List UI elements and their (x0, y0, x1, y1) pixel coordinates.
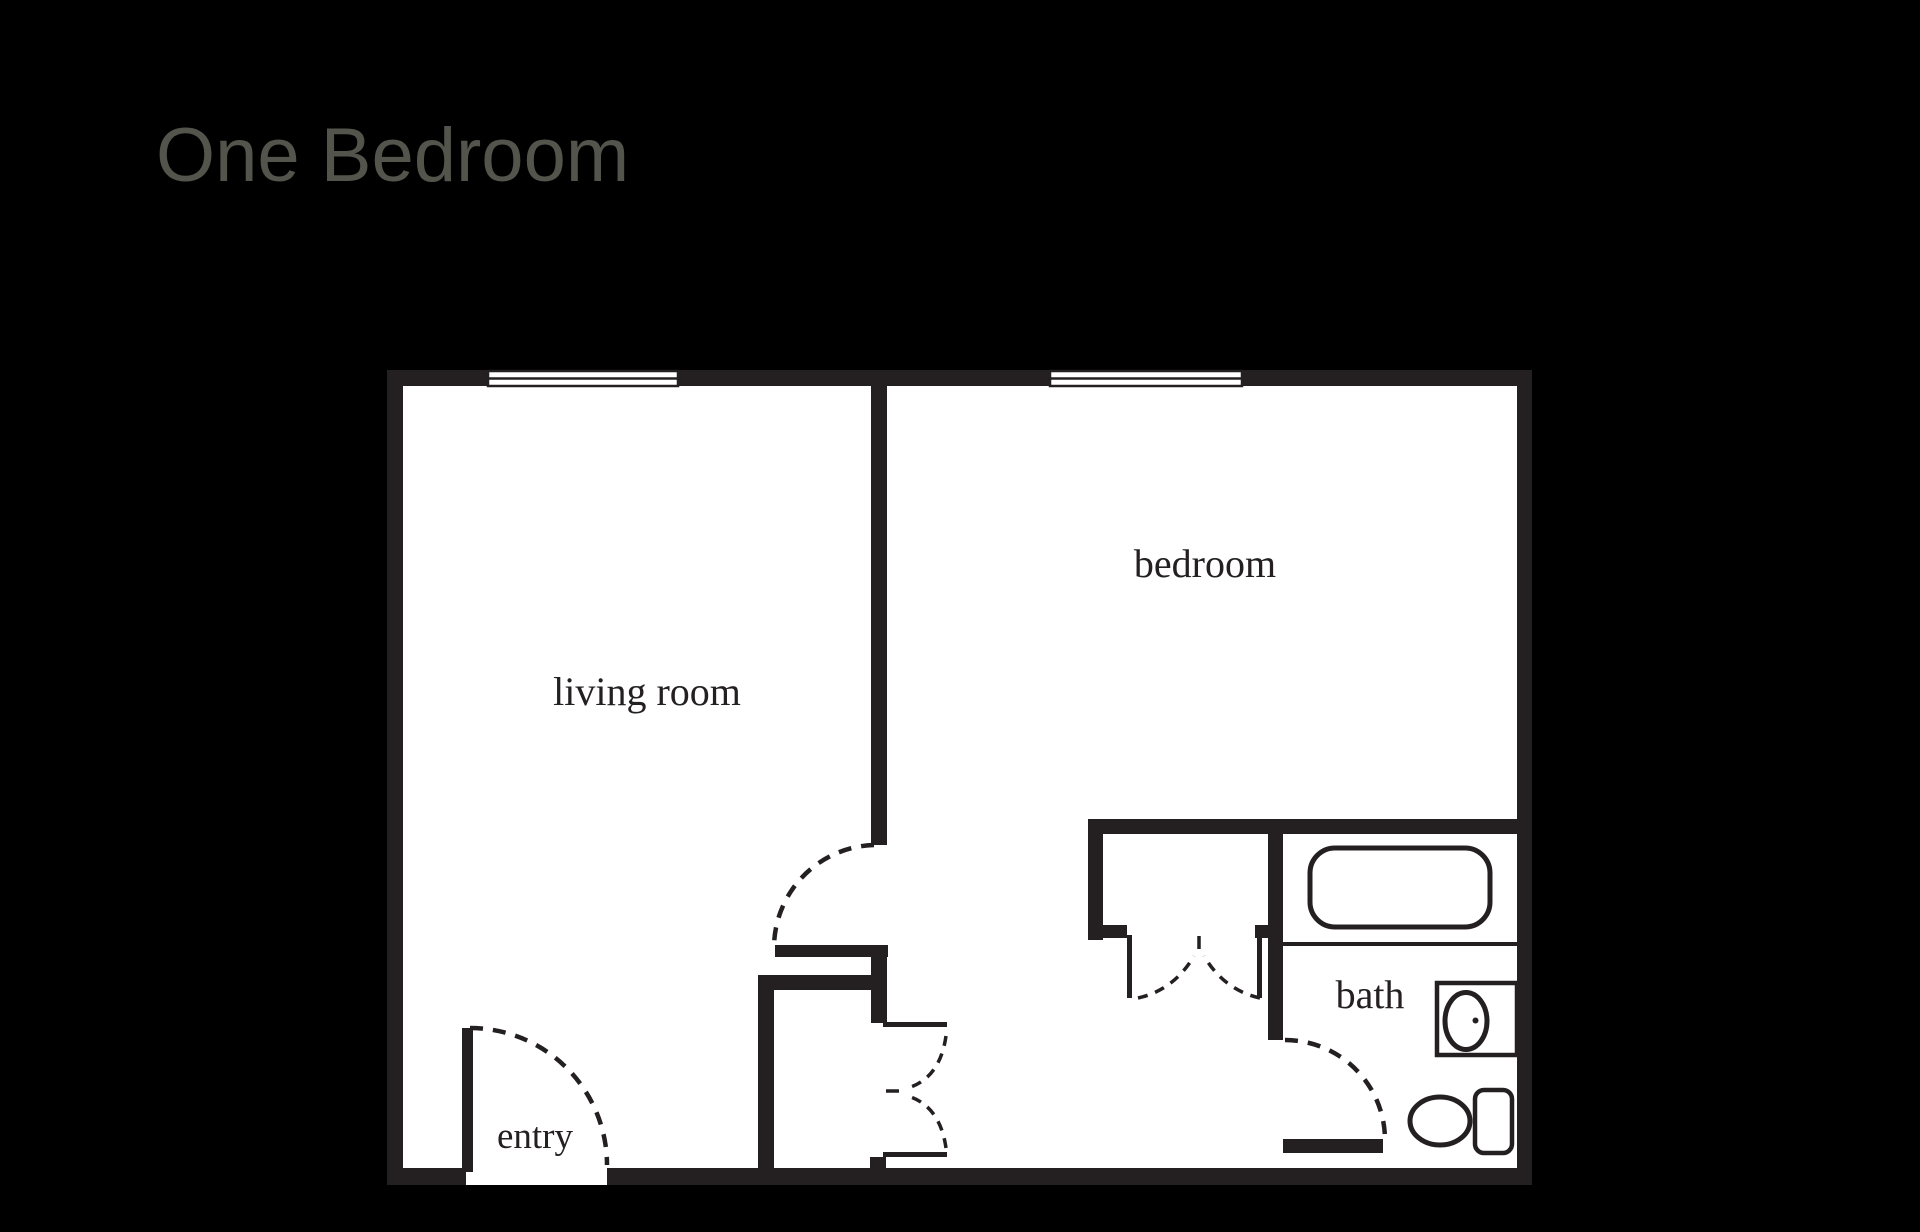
wall-bottom-left-of-entry (387, 1168, 466, 1185)
bedroom-closet-door-frame-right (1257, 935, 1262, 998)
wall-bath-left (1268, 834, 1283, 1040)
wall-hall-closet-jamb-upper (871, 952, 887, 1023)
wall-bottom-main (607, 1168, 1532, 1185)
wall-bath-door-side (1283, 1139, 1383, 1153)
living-room-window-icon (488, 371, 678, 386)
hall-closet-door-frame-top (883, 1022, 947, 1027)
floor-plan-page: One Bedroom (0, 0, 1920, 1232)
page-title: One Bedroom (156, 113, 629, 198)
bedroom-label: bedroom (1134, 541, 1276, 586)
entry-label: entry (497, 1116, 574, 1157)
bath-label: bath (1336, 972, 1405, 1017)
floor-plan-canvas: One Bedroom (0, 0, 1920, 1232)
wall-hall-closet-left (758, 975, 774, 1168)
wall-bedroom-closet-step-left (1100, 925, 1127, 938)
wall-right (1517, 370, 1532, 1185)
wall-living-bedroom-divider (871, 386, 887, 845)
bedroom-closet-door-frame-left (1127, 935, 1132, 998)
sink-drain-icon (1473, 1018, 1479, 1024)
wall-bedroom-closet-left (1088, 819, 1103, 940)
bathtub-icon (1310, 848, 1490, 927)
hall-closet-door-frame-bottom (883, 1152, 947, 1157)
sink-vanity-icon (1437, 983, 1517, 1055)
entry-door-leaf (462, 1028, 473, 1172)
living-room-label: living room (553, 669, 741, 714)
wall-hall-closet-jamb-lower (870, 1157, 886, 1185)
wall-hall-closet-top (758, 975, 872, 990)
wall-left (387, 370, 403, 1185)
bedroom-window-icon (1050, 371, 1242, 386)
wall-bath-top (1088, 819, 1517, 834)
